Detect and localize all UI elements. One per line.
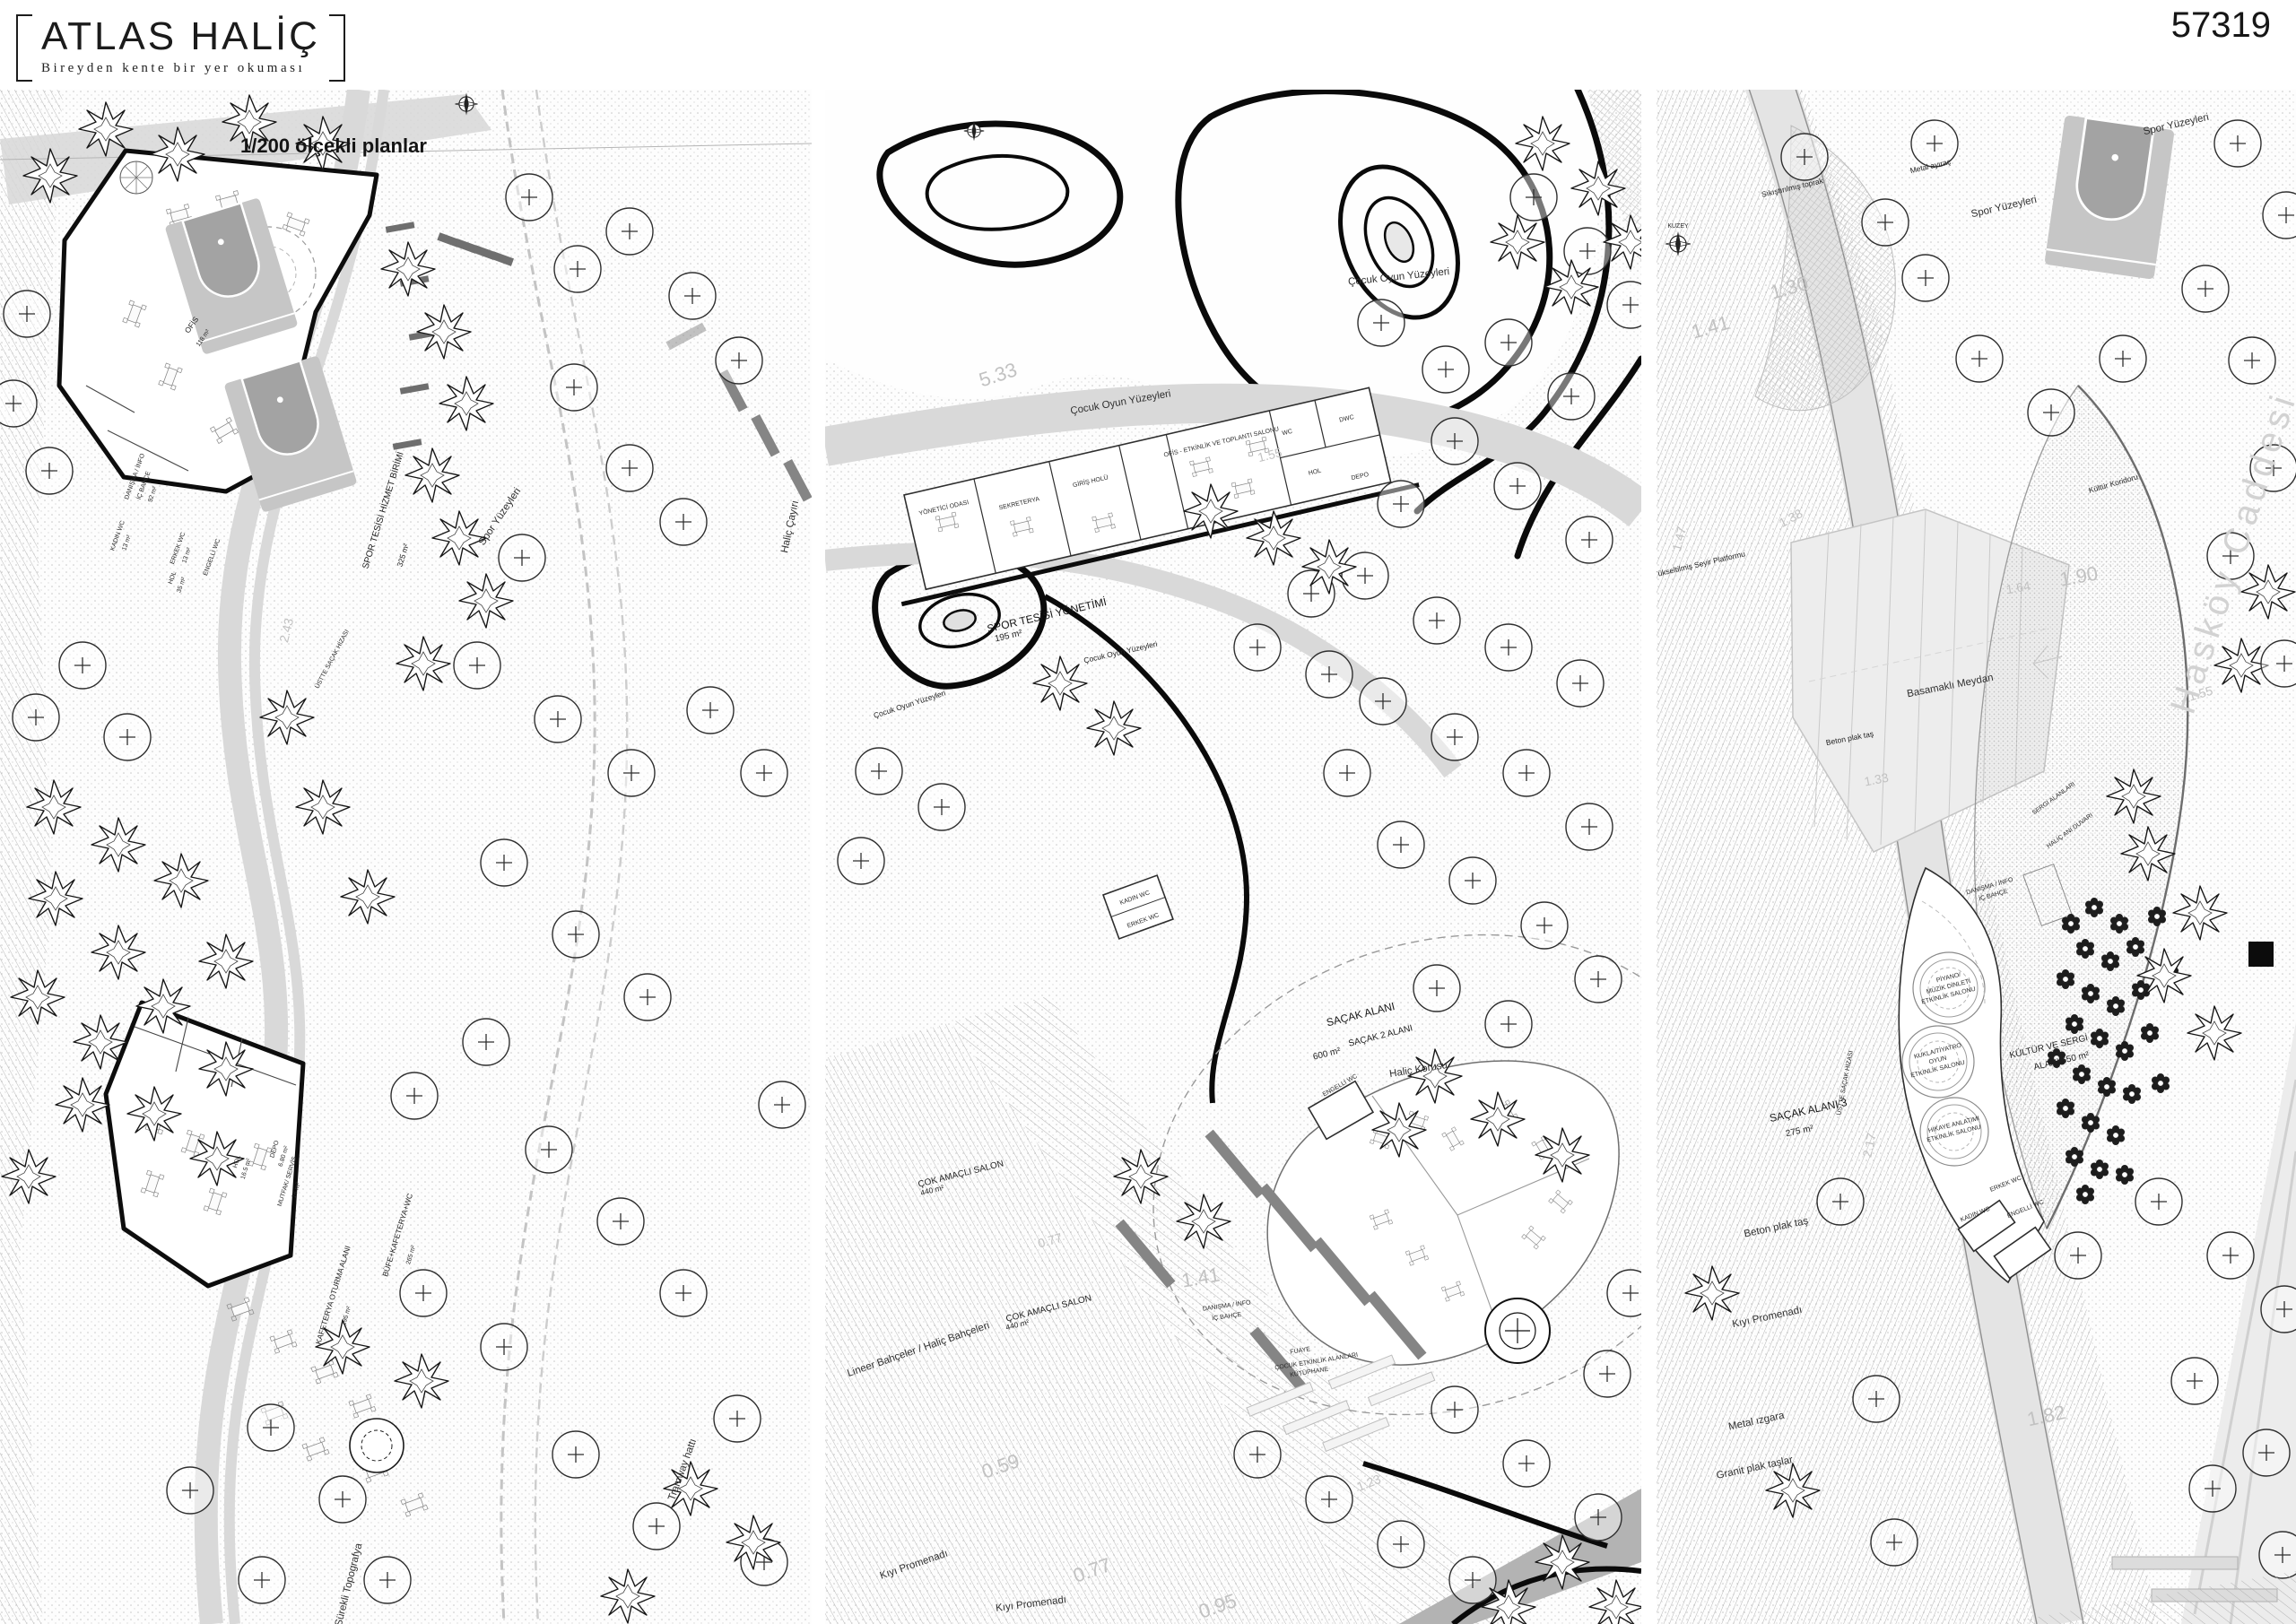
logo: ATLAS HALİÇ Bireyden kente bir yer okuma… (16, 14, 345, 82)
sheet-number: 57319 (2171, 5, 2271, 46)
page-title: ATLAS HALİÇ (41, 16, 320, 57)
plan-panels: SPOR TESİSİ HİZMET BİRİMİ 325 m² OFİS 11… (0, 90, 2296, 1624)
plan-panel-left: SPOR TESİSİ HİZMET BİRİMİ 325 m² OFİS 11… (0, 90, 812, 1624)
scale-label: 1/200 ölçekli planlar (240, 135, 427, 158)
plan-left-svg: SPOR TESİSİ HİZMET BİRİMİ 325 m² OFİS 11… (0, 90, 812, 1624)
plan-right-svg: Sıkıştırılmış toprak Metal ayıraç Spor Y… (1657, 90, 2296, 1624)
compass-label: KUZEY (1667, 223, 1689, 230)
page-subtitle: Bireyden kente bir yer okuması (41, 61, 320, 76)
presentation-sheet: ATLAS HALİÇ Bireyden kente bir yer okuma… (0, 0, 2296, 1624)
structure-footprint (2248, 942, 2274, 967)
basketball-court (2044, 115, 2174, 280)
plan-panel-middle: YÖNETİCİ ODASI SEKRETERYA GİRİŞ HOLÜ OFİ… (825, 90, 1641, 1624)
feature-circle (350, 1419, 404, 1472)
logo-bracket-right-icon (329, 14, 345, 82)
plan-middle-svg: YÖNETİCİ ODASI SEKRETERYA GİRİŞ HOLÜ OFİ… (825, 90, 1641, 1624)
logo-bracket-left-icon (16, 14, 32, 82)
plan-panel-right: Sıkıştırılmış toprak Metal ayıraç Spor Y… (1657, 90, 2296, 1624)
